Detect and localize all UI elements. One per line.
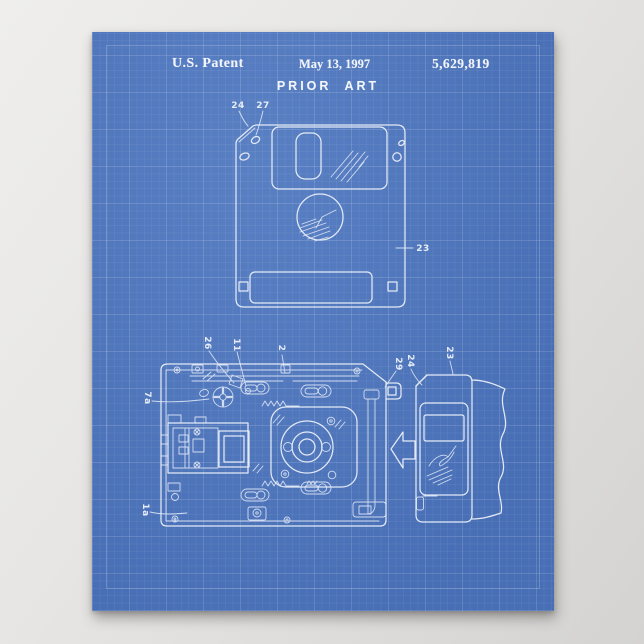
disk-scribble xyxy=(429,446,456,466)
screw xyxy=(284,517,290,523)
spindle-motor-outer xyxy=(281,421,333,473)
chassis-inner-lines xyxy=(166,370,379,521)
disk-write-protect-right xyxy=(388,282,397,291)
bottom-right-block xyxy=(353,502,386,517)
guide-rail xyxy=(368,399,375,514)
spring-top xyxy=(262,401,299,406)
hub-hatching xyxy=(300,210,336,241)
insertion-arrow xyxy=(391,432,415,468)
disk-scribble-hatch xyxy=(427,467,452,485)
left-mount xyxy=(168,483,180,491)
left-hole xyxy=(172,494,179,501)
ref-label-11: 11 xyxy=(231,338,241,352)
ref-label-24: 24 xyxy=(231,101,245,111)
disk-outline-group xyxy=(236,125,405,307)
ref-label-27: 27 xyxy=(256,101,270,111)
disk-tab xyxy=(417,497,424,510)
top-tab-1 xyxy=(192,365,203,373)
inserted-disk-outline xyxy=(416,375,472,522)
screw xyxy=(354,368,360,374)
ref-label-7a: 7a xyxy=(142,391,152,404)
disk-shutter-window xyxy=(296,133,321,179)
disk-right-hole xyxy=(393,153,401,161)
disk-shutter xyxy=(272,127,387,189)
rail-cap xyxy=(364,390,379,399)
disk-right-corner-hole xyxy=(398,139,406,146)
carriage-top-tab xyxy=(195,417,206,423)
patent-date: May 13, 1997 xyxy=(299,57,370,72)
disk-corner-hole-1 xyxy=(250,135,261,145)
carriage-tab xyxy=(161,456,168,465)
disk-write-protect-left xyxy=(239,282,248,291)
ref-label-1a: 1a xyxy=(140,503,150,516)
figure-floppy-disk-front: 24 27 23 xyxy=(212,98,452,313)
pivot-hole xyxy=(199,388,210,397)
ref-label-24b: 24 xyxy=(405,354,415,368)
figure-drive-mechanism: 26 11 2 7a 1a 29 24 23 xyxy=(135,335,525,545)
top-tab-3 xyxy=(281,365,290,373)
ref-label-29: 29 xyxy=(393,357,403,371)
mechanism-detail-group xyxy=(150,351,456,523)
spindle-side-hole xyxy=(284,443,293,452)
ref-label-23: 23 xyxy=(416,244,430,254)
carriage-tab xyxy=(161,435,168,444)
chassis-outline xyxy=(161,364,386,526)
top-rail-lines xyxy=(190,376,359,381)
disk-label-strip xyxy=(250,272,372,303)
mechanism-main-group xyxy=(161,364,506,526)
patent-publication: U.S. Patent xyxy=(172,56,244,72)
spindle-screw xyxy=(328,471,336,479)
side-bracket-hole xyxy=(388,387,396,395)
spindle-screw xyxy=(327,417,335,425)
patent-number: 5,629,819 xyxy=(432,56,490,72)
top-tab-2 xyxy=(217,365,228,372)
figure-title: PRIOR ART xyxy=(102,79,554,93)
ref-label-26: 26 xyxy=(202,336,212,350)
disk-hub xyxy=(297,194,343,240)
spindle-motor-inner xyxy=(299,439,315,455)
inserted-disk-shutter xyxy=(420,403,468,495)
head-carriage-window xyxy=(224,436,244,462)
ref-label-23b: 23 xyxy=(444,346,454,360)
shutter-hatching xyxy=(331,151,368,182)
ref-label-2: 2 xyxy=(276,345,286,352)
disk-break-band xyxy=(472,380,506,519)
blueprint-poster: U.S. Patent May 13, 1997 5,629,819 PRIOR… xyxy=(92,32,554,611)
spindle-side-hole xyxy=(322,443,331,452)
left-mount xyxy=(168,415,181,423)
disk-corner-hole-2 xyxy=(239,152,250,162)
spindle-screw xyxy=(281,470,289,478)
disk-corner-chamfer-line xyxy=(239,128,255,142)
spindle-motor-mid xyxy=(292,432,322,462)
inserted-disk-window xyxy=(424,415,464,441)
